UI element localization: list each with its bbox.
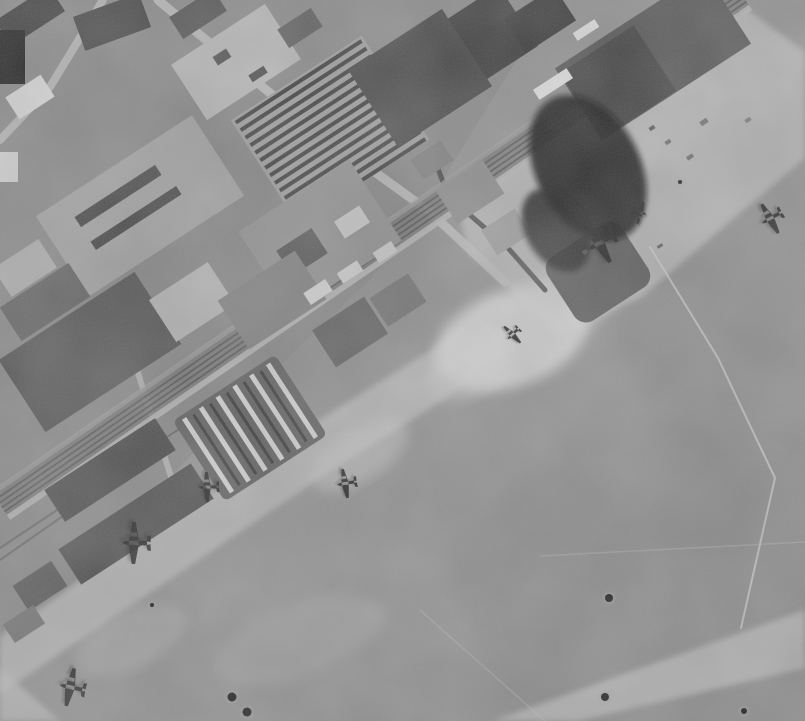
film-grain — [0, 0, 805, 721]
film-grain-layer — [0, 0, 805, 721]
aerial-photo-frame — [0, 0, 805, 721]
aerial-photo — [0, 0, 805, 721]
